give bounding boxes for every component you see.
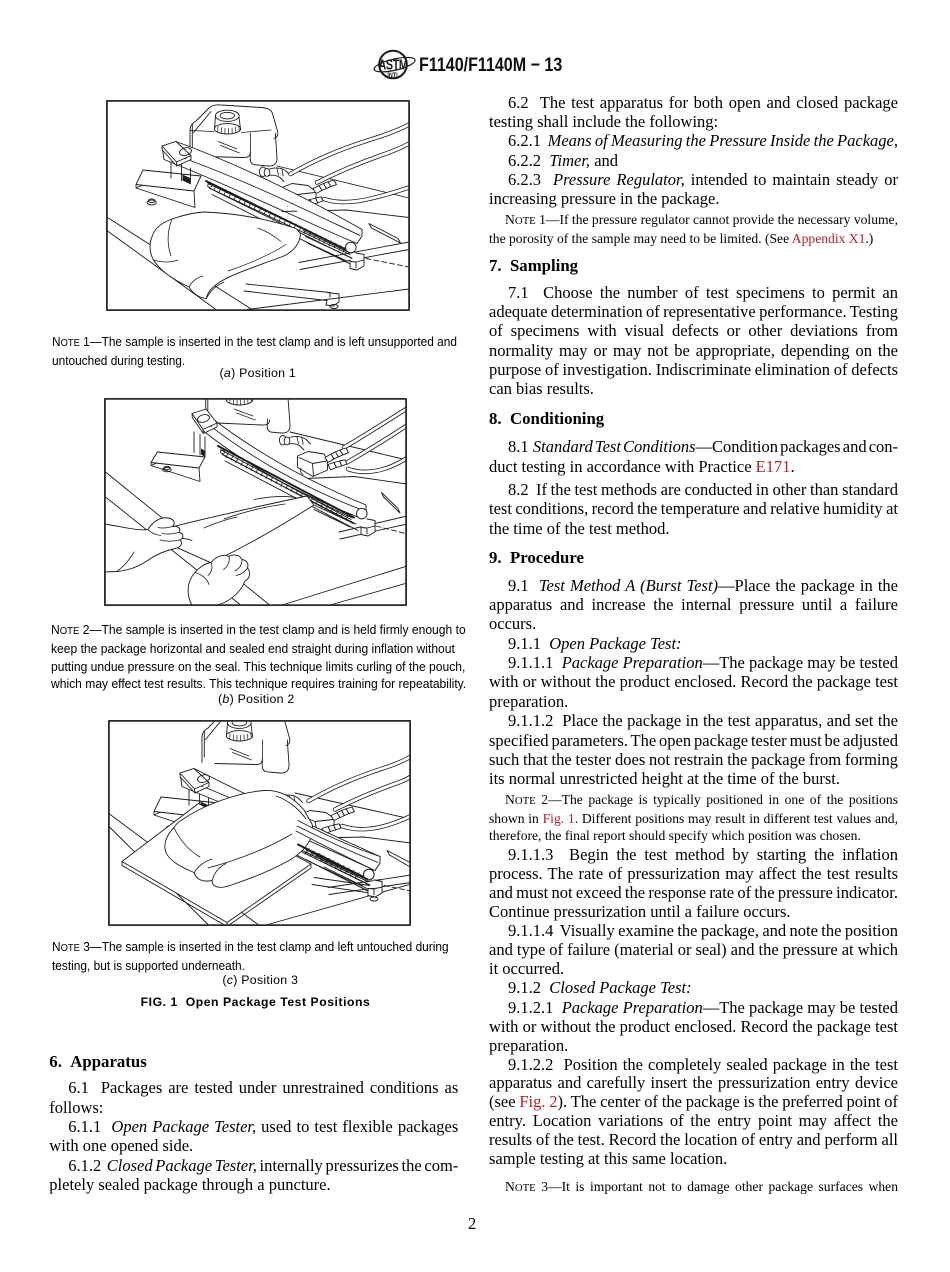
svg-text:ASTM: ASTM xyxy=(379,56,408,73)
svg-text:INTL: INTL xyxy=(387,72,399,80)
